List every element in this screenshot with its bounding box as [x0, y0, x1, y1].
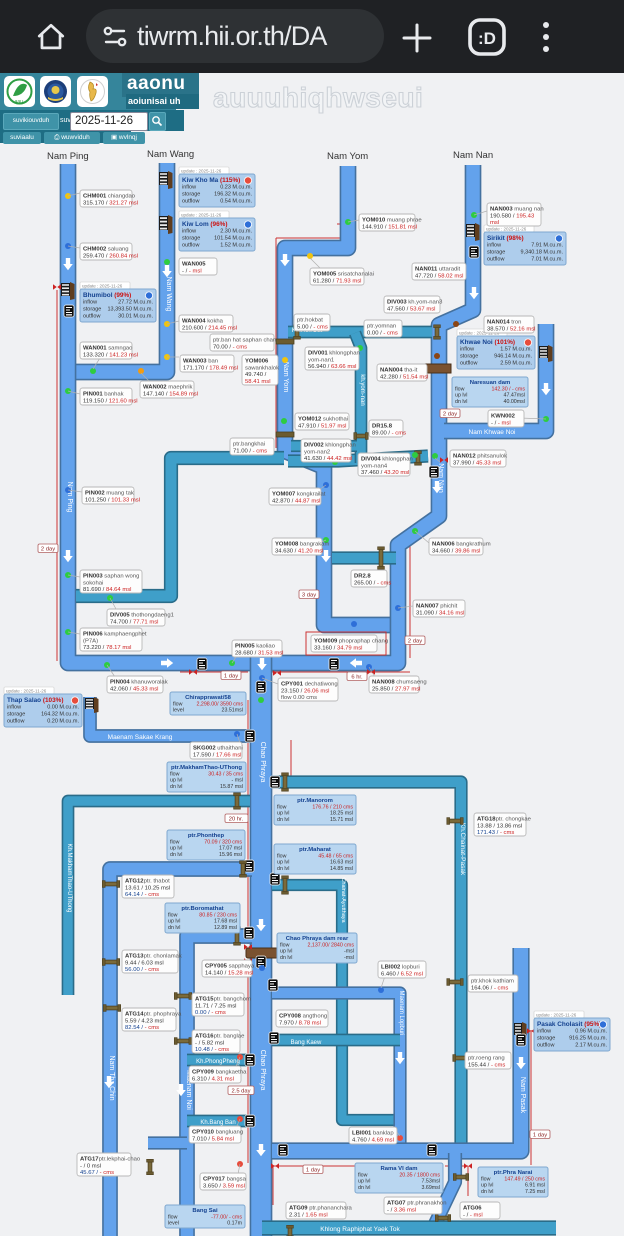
svg-text:ATG15ptr. bangchom: ATG15ptr. bangchom	[195, 997, 251, 1003]
svg-text:Naresuan dam: Naresuan dam	[470, 380, 511, 386]
svg-text:56.00 / - cms: 56.00 / - cms	[125, 967, 159, 973]
svg-text:70.09 / 320 cms: 70.09 / 320 cms	[204, 840, 242, 846]
svg-text:WAN005: WAN005	[182, 262, 206, 268]
svg-text:Kh.Chainat-Pasak: Kh.Chainat-Pasak	[459, 823, 466, 876]
svg-text:17.68 msl: 17.68 msl	[214, 919, 237, 925]
svg-text:13.88 / 13.86 msl: 13.88 / 13.86 msl	[477, 823, 522, 829]
svg-text:0.00 / - cms: 0.00 / - cms	[367, 330, 398, 336]
svg-text:47.910 / 51.97 msl: 47.910 / 51.97 msl	[298, 423, 346, 429]
svg-text:update : 2025-11-26: update : 2025-11-26	[181, 169, 222, 174]
svg-text:SKG002 uthaithani: SKG002 uthaithani	[193, 746, 243, 752]
svg-text:ATG07 ptr.phranakhon: ATG07 ptr.phranakhon	[387, 1201, 447, 1207]
svg-text:265.00 / - cms: 265.00 / - cms	[354, 580, 391, 586]
svg-text:42.060 / 45.33 msl: 42.060 / 45.33 msl	[110, 686, 158, 692]
svg-text:2 day: 2 day	[408, 638, 422, 644]
svg-text:71.00 / - cms: 71.00 / - cms	[233, 448, 267, 454]
svg-text:Chainat-Ayutthaya: Chainat-Ayutthaya	[340, 877, 346, 923]
svg-text:58.41 msl: 58.41 msl	[245, 379, 271, 385]
svg-text:17.07 msl: 17.07 msl	[219, 846, 242, 852]
svg-text:inflow: inflow	[7, 705, 21, 711]
svg-text:45.48 / 65 cms: 45.48 / 65 cms	[318, 854, 353, 860]
svg-text:kh.yom-nan: kh.yom-nan	[359, 374, 365, 405]
svg-text:81.690 / 84.64 msl: 81.690 / 84.64 msl	[83, 587, 131, 593]
svg-text:30.43 / 35 cms: 30.43 / 35 cms	[208, 772, 243, 778]
svg-text:34.630 / 41.20 msl: 34.630 / 41.20 msl	[275, 548, 323, 554]
svg-text:up lvl: up lvl	[170, 846, 182, 852]
svg-text:NAN008 chumsaeng: NAN008 chumsaeng	[372, 680, 427, 686]
svg-text:storage: storage	[7, 712, 25, 718]
svg-text:6 hr.: 6 hr.	[351, 674, 363, 680]
svg-text:49.740 /: 49.740 /	[245, 372, 267, 378]
svg-text:Kh.MakhamThao-UThong: Kh.MakhamThao-UThong	[66, 843, 72, 912]
svg-text:up lvl: up lvl	[481, 1183, 493, 1189]
svg-text:ATG09 ptr.phananchara: ATG09 ptr.phananchara	[289, 1206, 352, 1212]
svg-text:outflow: outflow	[182, 199, 199, 205]
svg-text:2.31 / 1.65 msl: 2.31 / 1.65 msl	[289, 1212, 328, 1218]
svg-text:2.30 M.cu.m.: 2.30 M.cu.m.	[220, 229, 252, 235]
svg-text:YOM012 sukhothai: YOM012 sukhothai	[298, 417, 348, 423]
svg-text:9,340.18 M.cu.m.: 9,340.18 M.cu.m.	[521, 250, 564, 256]
svg-text:update : 2025-11-26: update : 2025-11-26	[486, 227, 527, 232]
svg-text:Pasak Cholasit (95%): Pasak Cholasit (95%)	[537, 1021, 601, 1028]
svg-text:dn lvl: dn lvl	[170, 852, 182, 858]
svg-text:flow 0.00 cms: flow 0.00 cms	[281, 695, 317, 701]
svg-text:YOM009 phopraphap chang: YOM009 phopraphap chang	[314, 639, 388, 645]
svg-text:ATG18ptr. chongkae: ATG18ptr. chongkae	[477, 817, 532, 823]
svg-text:inflow: inflow	[182, 185, 196, 191]
svg-text:6.310 / 4.31 msl: 6.310 / 4.31 msl	[192, 1076, 234, 1082]
svg-text:14.85 msl: 14.85 msl	[330, 866, 353, 872]
svg-text:33.160 / 34.79 msl: 33.160 / 34.79 msl	[314, 645, 362, 651]
svg-text:level: level	[168, 1221, 179, 1227]
svg-text:171.170 / 178.49 msl: 171.170 / 178.49 msl	[183, 365, 238, 371]
svg-text:up lvl: up lvl	[170, 778, 182, 784]
svg-text:up lvl: up lvl	[455, 393, 467, 399]
svg-text:142.30 / - cms: 142.30 / - cms	[491, 387, 525, 393]
svg-text:inflow: inflow	[537, 1029, 551, 1035]
svg-text:176.76 / 210 cms: 176.76 / 210 cms	[312, 805, 353, 811]
svg-text:NAN004 tha-it: NAN004 tha-it	[380, 368, 418, 374]
svg-text:15.96 msl: 15.96 msl	[219, 852, 242, 858]
svg-text:Bhumibol (99%): Bhumibol (99%)	[83, 292, 131, 299]
svg-text:ATG13ptr. chonlamak: ATG13ptr. chonlamak	[125, 954, 182, 960]
svg-text:flow: flow	[358, 1173, 368, 1179]
svg-text:NAN012 phitsanulok: NAN012 phitsanulok	[453, 454, 507, 460]
svg-text:16.63 msl: 16.63 msl	[330, 860, 353, 866]
svg-text:update : 2025-11-26: update : 2025-11-26	[82, 284, 123, 289]
svg-text:0.23 M.cu.m.: 0.23 M.cu.m.	[220, 185, 252, 191]
svg-text:ATG06: ATG06	[463, 1206, 482, 1212]
svg-text:flow: flow	[455, 387, 465, 393]
svg-text:80.85 / 230 cms: 80.85 / 230 cms	[199, 913, 237, 919]
svg-text:12.89 msl: 12.89 msl	[214, 925, 237, 931]
svg-text:7.91 M.cu.m.: 7.91 M.cu.m.	[531, 243, 563, 249]
svg-text:Chao Phraya: Chao Phraya	[259, 1050, 266, 1091]
svg-text:13.61 / 10.25 msl: 13.61 / 10.25 msl	[125, 885, 170, 891]
svg-text:PIN003 saphan wong: PIN003 saphan wong	[83, 574, 139, 580]
svg-text:164.06 / - cms: 164.06 / - cms	[471, 985, 508, 991]
svg-text:DIV004 khlongphan: DIV004 khlongphan	[361, 457, 413, 463]
svg-text:0.00 / - cms: 0.00 / - cms	[195, 1010, 226, 1016]
svg-text:CPY017 bangsa: CPY017 bangsa	[203, 1177, 247, 1183]
svg-text:PIN005 kaoliao: PIN005 kaoliao	[235, 644, 276, 650]
svg-text:946.14 M.cu.m.: 946.14 M.cu.m.	[494, 354, 532, 360]
svg-text:Kiw Kho Ma (115%): Kiw Kho Ma (115%)	[182, 177, 240, 184]
svg-text:89.00 / - cms: 89.00 / - cms	[372, 430, 406, 436]
svg-text:dn lvl: dn lvl	[277, 817, 289, 823]
svg-text:ptr.Phonthep: ptr.Phonthep	[188, 833, 225, 839]
svg-text:DIV003 kh.yom-nan3: DIV003 kh.yom-nan3	[387, 300, 443, 306]
svg-text:update : 2025-11-26: update : 2025-11-26	[536, 1013, 577, 1018]
svg-text:CHM001 chiangdao: CHM001 chiangdao	[83, 194, 136, 200]
svg-text:yom-nan4: yom-nan4	[361, 463, 388, 469]
svg-text:ATG14ptr. phophraya: ATG14ptr. phophraya	[125, 1012, 182, 1018]
svg-text:Kh.PhongPheng: Kh.PhongPheng	[196, 1059, 240, 1065]
svg-text:259.470 / 260.84 msl: 259.470 / 260.84 msl	[83, 253, 138, 259]
svg-text:flow: flow	[168, 1215, 178, 1221]
svg-text:3 day: 3 day	[302, 592, 316, 598]
svg-text:YOM010 muang phrae: YOM010 muang phrae	[362, 218, 422, 224]
svg-text:- / - msl: - / - msl	[491, 420, 511, 426]
svg-text:YOM006: YOM006	[245, 359, 269, 365]
svg-text:17.590 / 17.66 msl: 17.590 / 17.66 msl	[193, 752, 241, 758]
svg-text:DR15.8: DR15.8	[372, 424, 393, 430]
svg-text:dn lvl: dn lvl	[358, 1185, 370, 1191]
svg-text:-msl: -msl	[344, 955, 354, 961]
svg-text:Nam Yom: Nam Yom	[282, 362, 289, 393]
svg-text:update : 2025-11-26: update : 2025-11-26	[181, 213, 222, 218]
svg-text:storage: storage	[182, 192, 200, 198]
svg-text:YOM005 srisatchanalai: YOM005 srisatchanalai	[313, 272, 374, 278]
svg-text:flow: flow	[170, 772, 180, 778]
svg-text:inflow: inflow	[83, 300, 97, 306]
svg-text:Nam Ping: Nam Ping	[66, 482, 73, 513]
svg-text:42.870 / 44.87 msl: 42.870 / 44.87 msl	[272, 498, 320, 504]
svg-text:13,393.50 M.cu.m.: 13,393.50 M.cu.m.	[107, 307, 153, 313]
svg-text:YOM008 bangrakam: YOM008 bangrakam	[275, 542, 329, 548]
svg-text:dn lvl: dn lvl	[277, 866, 289, 872]
svg-text:(P7A): (P7A)	[83, 638, 98, 644]
svg-text:3.69msl: 3.69msl	[421, 1185, 440, 1191]
svg-text:DIV002 khlongphan: DIV002 khlongphan	[304, 443, 356, 449]
svg-text:2 day: 2 day	[41, 546, 55, 552]
svg-text:47.560 / 53.67 msl: 47.560 / 53.67 msl	[387, 306, 435, 312]
svg-text:yom-nan1: yom-nan1	[308, 357, 334, 363]
svg-text:storage: storage	[83, 307, 101, 313]
svg-text:up lvl: up lvl	[358, 1179, 370, 1185]
svg-text:0.00 M.cu.m.: 0.00 M.cu.m.	[47, 705, 79, 711]
svg-text:Kh.Bang Ban: Kh.Bang Ban	[200, 1120, 235, 1126]
svg-text:101.250 / 101.33 msl: 101.250 / 101.33 msl	[85, 497, 140, 503]
svg-text:155.44 / - cms: 155.44 / - cms	[468, 1062, 505, 1068]
svg-text:inflow: inflow	[182, 229, 196, 235]
svg-text:ptr.Maharat: ptr.Maharat	[299, 847, 331, 853]
svg-text:196.32 M.cu.m.: 196.32 M.cu.m.	[214, 192, 252, 198]
svg-text:- msl: - msl	[232, 778, 243, 784]
svg-text:1 day: 1 day	[306, 1167, 320, 1173]
svg-text:flow: flow	[481, 1177, 491, 1183]
svg-text:KWN002: KWN002	[491, 414, 516, 420]
svg-text:25.850 / 27.97 msl: 25.850 / 27.97 msl	[372, 686, 420, 692]
svg-text:flow: flow	[277, 805, 287, 811]
svg-text:- / - msl: - / - msl	[182, 268, 202, 274]
svg-text:ptr.khok kathiam: ptr.khok kathiam	[471, 979, 514, 985]
svg-text:up lvl: up lvl	[280, 949, 292, 955]
svg-text:2 day: 2 day	[443, 411, 457, 417]
svg-text:47.47msl: 47.47msl	[504, 393, 526, 399]
svg-text:56.940 / 63.66 msl: 56.940 / 63.66 msl	[308, 364, 356, 370]
svg-text:ptr.yomnan: ptr.yomnan	[367, 324, 396, 330]
svg-text:Bang Sai: Bang Sai	[192, 1208, 218, 1214]
svg-text:164.32 M.cu.m.: 164.32 M.cu.m.	[41, 712, 79, 718]
svg-text:34.660 / 39.86 msl: 34.660 / 39.86 msl	[432, 548, 480, 554]
svg-text:Maenam Sakae Krang: Maenam Sakae Krang	[108, 734, 173, 741]
svg-text:CPY010 bangluang: CPY010 bangluang	[192, 1130, 243, 1136]
svg-text:0.96 M.cu.m.: 0.96 M.cu.m.	[575, 1029, 607, 1035]
svg-text:1 day: 1 day	[224, 673, 238, 679]
svg-text:NAN011 uttaradit: NAN011 uttaradit	[415, 267, 461, 273]
svg-text:64.14 / - cms: 64.14 / - cms	[125, 892, 159, 898]
svg-text:sokohai: sokohai	[83, 580, 103, 586]
svg-text:119.150 / 121.60 msl: 119.150 / 121.60 msl	[83, 398, 138, 404]
svg-text:outflow: outflow	[460, 361, 477, 367]
svg-text:CPY009 bangkaetha: CPY009 bangkaetha	[192, 1070, 247, 1076]
svg-text:up lvl: up lvl	[277, 860, 289, 866]
svg-text:ATG12ptr. thabot: ATG12ptr. thabot	[125, 879, 170, 885]
svg-text:190.580 / 195.43: 190.580 / 195.43	[490, 213, 535, 219]
svg-text:14.140 / 15.28 msl: 14.140 / 15.28 msl	[205, 970, 253, 976]
svg-text:Nam Wang: Nam Wang	[165, 277, 172, 312]
svg-text:-msl: -msl	[344, 949, 354, 955]
svg-text:PIN006 kamphaengphet: PIN006 kamphaengphet	[83, 632, 147, 638]
svg-text:PIN004 khanuworalak: PIN004 khanuworalak	[110, 680, 168, 686]
svg-text:10.48 / - cms: 10.48 / - cms	[195, 1047, 229, 1053]
svg-text:41.630 / 44.42 msl: 41.630 / 44.42 msl	[304, 456, 352, 462]
svg-text:CPY005 sapphaya: CPY005 sapphaya	[205, 964, 255, 970]
svg-text:ptr.Boromathat: ptr.Boromathat	[181, 906, 223, 912]
svg-text:37.990 / 45.33 msl: 37.990 / 45.33 msl	[453, 460, 501, 466]
svg-text:ptr.bangkhai: ptr.bangkhai	[233, 442, 265, 448]
svg-text:315.170 / 321.27 msl: 315.170 / 321.27 msl	[83, 200, 138, 206]
svg-text:storage: storage	[182, 236, 200, 242]
svg-text:7.01 M.cu.m.: 7.01 M.cu.m.	[531, 257, 563, 263]
svg-text:5.00 / - cms: 5.00 / - cms	[297, 324, 328, 330]
svg-text:- / 3.36 msl: - / 3.36 msl	[387, 1207, 416, 1213]
svg-text:3.650 / 3.59 msl: 3.650 / 3.59 msl	[203, 1183, 245, 1189]
svg-text:outflow: outflow	[182, 243, 199, 249]
svg-text:0.20 M.cu.m.: 0.20 M.cu.m.	[47, 719, 79, 725]
svg-text:45.67 / - cms: 45.67 / - cms	[80, 1170, 114, 1176]
svg-text:flow: flow	[168, 913, 178, 919]
svg-text:6.460 / 6.52 msl: 6.460 / 6.52 msl	[381, 971, 423, 977]
svg-text:inflow: inflow	[460, 347, 474, 353]
svg-text:flow: flow	[170, 840, 180, 846]
svg-text:2,137.00/ 2840 cms: 2,137.00/ 2840 cms	[307, 943, 354, 949]
svg-text:NAN007 phichit: NAN007 phichit	[416, 604, 458, 610]
svg-text:916.25 M.cu.m.: 916.25 M.cu.m.	[569, 1036, 607, 1042]
svg-text:2,298.00/ 3590 cms: 2,298.00/ 3590 cms	[196, 702, 243, 708]
svg-text:flow: flow	[277, 854, 287, 860]
svg-text:ptr.ban hat saphan chan: ptr.ban hat saphan chan	[213, 338, 276, 344]
svg-text:outflow: outflow	[487, 257, 504, 263]
svg-text:38.570 / 52.16 msl: 38.570 / 52.16 msl	[487, 326, 535, 332]
svg-text:82.54 / - cms: 82.54 / - cms	[125, 1025, 159, 1031]
svg-text:ATG16ptr. banglae: ATG16ptr. banglae	[195, 1034, 245, 1040]
svg-text:WAN003 ban: WAN003 ban	[183, 359, 218, 365]
svg-text:9.44 / 6.03 msl: 9.44 / 6.03 msl	[125, 960, 164, 966]
svg-text:dn lvl: dn lvl	[481, 1189, 493, 1195]
svg-text:outflow: outflow	[537, 1043, 554, 1049]
svg-text:1 day: 1 day	[533, 1132, 547, 1138]
svg-text:ptr.Manorom: ptr.Manorom	[297, 798, 333, 804]
svg-text:DIV001 khlongphan: DIV001 khlongphan	[308, 351, 360, 357]
svg-text:18.25 msl: 18.25 msl	[330, 811, 353, 817]
svg-text:2.59 M.cu.m.: 2.59 M.cu.m.	[500, 361, 532, 367]
svg-text:Chao Phraya: Chao Phraya	[259, 742, 266, 783]
svg-text:Khwae Noi (101%): Khwae Noi (101%)	[460, 339, 515, 346]
svg-text:WAN002 maephrik: WAN002 maephrik	[143, 385, 193, 391]
svg-text:171.43 / - cms: 171.43 / - cms	[477, 830, 514, 836]
svg-text:0.54 M.cu.m.: 0.54 M.cu.m.	[220, 199, 252, 205]
svg-text:210.600 / 214.45 msl: 210.600 / 214.45 msl	[182, 325, 237, 331]
svg-text:23.150 / 26.06 msl: 23.150 / 26.06 msl	[281, 688, 329, 694]
svg-text:WAN004 kokha: WAN004 kokha	[182, 319, 224, 325]
svg-text:47.720 / 58.02 msl: 47.720 / 58.02 msl	[415, 273, 463, 279]
svg-text:101.54 M.cu.m.: 101.54 M.cu.m.	[214, 236, 252, 242]
svg-text:update : 2025-11-26: update : 2025-11-26	[6, 689, 47, 694]
svg-text:dn lvl: dn lvl	[168, 925, 180, 931]
svg-text:Kiw Lom (96%): Kiw Lom (96%)	[182, 221, 227, 228]
svg-text:Khlong Raphiphat Yaek Tok: Khlong Raphiphat Yaek Tok	[320, 1226, 400, 1233]
svg-text:- / 5.82 msl: - / 5.82 msl	[195, 1040, 224, 1046]
svg-text:2.17 M.cu.m.: 2.17 M.cu.m.	[575, 1043, 607, 1049]
svg-text:7.010 / 5.84 msl: 7.010 / 5.84 msl	[192, 1136, 234, 1142]
svg-text:Nam Khwae Noi: Nam Khwae Noi	[469, 429, 516, 436]
svg-text:Rama VI dam: Rama VI dam	[381, 1166, 418, 1172]
svg-text:73.220 / 78.17 msl: 73.220 / 78.17 msl	[83, 645, 131, 651]
svg-text:DIV005 thothongdaeng1: DIV005 thothongdaeng1	[110, 613, 174, 619]
svg-text:Chao Phraya dam rear: Chao Phraya dam rear	[286, 936, 349, 942]
svg-text:level: level	[173, 708, 184, 714]
svg-text:storage: storage	[460, 354, 478, 360]
svg-text:NAN006 bangkrathum: NAN006 bangkrathum	[432, 542, 491, 548]
svg-text:30.01 M.cu.m.: 30.01 M.cu.m.	[118, 314, 153, 320]
svg-text:20 hr.: 20 hr.	[229, 816, 244, 822]
svg-text:Chirapprawat/58: Chirapprawat/58	[185, 695, 232, 701]
svg-text:4.760 / 4.69 msl: 4.760 / 4.69 msl	[352, 1137, 394, 1143]
svg-text:WAN001 samngao: WAN001 samngao	[83, 346, 133, 352]
svg-text:7.53msl: 7.53msl	[421, 1179, 440, 1185]
svg-text:15.87 msl: 15.87 msl	[220, 784, 243, 790]
svg-text:23.51msl: 23.51msl	[222, 708, 244, 714]
svg-text:dn lvl: dn lvl	[170, 784, 182, 790]
svg-text:outflow: outflow	[83, 314, 100, 320]
svg-text:YOM007 kongkrailat: YOM007 kongkrailat	[272, 492, 326, 498]
svg-text:ptr.roeng rang: ptr.roeng rang	[468, 1056, 505, 1062]
svg-text:74.700 / 77.71 msl: 74.700 / 77.71 msl	[110, 619, 158, 625]
svg-text:storage: storage	[537, 1036, 555, 1042]
svg-text:sawankhalok: sawankhalok	[245, 365, 279, 371]
svg-text:70.00 / - cms: 70.00 / - cms	[213, 344, 247, 350]
svg-text:0.17m: 0.17m	[227, 1221, 242, 1227]
svg-text:NAN014 tron: NAN014 tron	[487, 320, 521, 326]
svg-text:PIN002 muang tak: PIN002 muang tak	[85, 491, 134, 497]
svg-text:31.090 / 34.16 msl: 31.090 / 34.16 msl	[416, 610, 464, 616]
svg-text:PIN001 banhak: PIN001 banhak	[83, 392, 124, 398]
svg-text:7.970 / 8.78 msl: 7.970 / 8.78 msl	[279, 1020, 321, 1026]
svg-text:6.91 msl: 6.91 msl	[525, 1183, 545, 1189]
svg-text:ptr.hokbat: ptr.hokbat	[297, 318, 323, 324]
svg-text:Bang Kaew: Bang Kaew	[291, 1040, 322, 1046]
svg-text:up lvl: up lvl	[168, 919, 180, 925]
svg-text:up lvl: up lvl	[277, 811, 289, 817]
svg-text:CPY001 dechatiwong: CPY001 dechatiwong	[281, 682, 338, 688]
svg-text:CHM002 saluang: CHM002 saluang	[83, 247, 129, 253]
svg-text:15.71 msl: 15.71 msl	[330, 817, 353, 823]
svg-text:2.5 day: 2.5 day	[231, 1088, 250, 1094]
svg-text:61.280 / 71.93 msl: 61.280 / 71.93 msl	[313, 278, 361, 284]
svg-text:LBI002 lopburi: LBI002 lopburi	[381, 965, 420, 971]
svg-text:yom-nan2: yom-nan2	[304, 449, 330, 455]
svg-text:ATG17ptr.lekphai-chao: ATG17ptr.lekphai-chao	[80, 1157, 141, 1163]
svg-text:Sirikit (98%): Sirikit (98%)	[487, 235, 524, 242]
svg-text:msl: msl	[490, 220, 499, 226]
svg-text:144.910 / 151.81 msl: 144.910 / 151.81 msl	[362, 224, 417, 230]
svg-text:27.72 M.cu.m.: 27.72 M.cu.m.	[118, 300, 153, 306]
svg-text:5.59 / 4.23 msl: 5.59 / 4.23 msl	[125, 1018, 164, 1024]
svg-text:40.00msl: 40.00msl	[504, 399, 526, 405]
svg-text:flow: flow	[280, 943, 290, 949]
svg-text:-77.00/ - cms: -77.00/ - cms	[211, 1215, 242, 1221]
svg-text:42.280 / 51.54 msl: 42.280 / 51.54 msl	[380, 374, 428, 380]
svg-text:7.25 msl: 7.25 msl	[525, 1189, 545, 1195]
svg-text:CPY008 angthong: CPY008 angthong	[279, 1014, 327, 1020]
svg-text:flow: flow	[173, 702, 183, 708]
svg-text:outflow: outflow	[7, 719, 24, 725]
svg-text:NAN003 muang nan: NAN003 muang nan	[490, 207, 544, 213]
svg-text:1.57 M.cu.m.: 1.57 M.cu.m.	[500, 347, 532, 353]
svg-text:ptr.MakhamThao-UThong: ptr.MakhamThao-UThong	[171, 765, 242, 771]
svg-text:LBI001 banklap: LBI001 banklap	[352, 1131, 394, 1137]
svg-text:37.460 / 43.20 msl: 37.460 / 43.20 msl	[361, 470, 409, 476]
svg-text:- / - msl: - / - msl	[463, 1212, 483, 1218]
svg-text:DR2.8: DR2.8	[354, 574, 371, 580]
svg-text:Nam Pasak: Nam Pasak	[519, 1077, 526, 1114]
svg-text:147.140 / 154.89 msl: 147.140 / 154.89 msl	[143, 391, 198, 397]
svg-text:dn lvl: dn lvl	[455, 399, 467, 405]
svg-text:147.49 / 250 cms: 147.49 / 250 cms	[504, 1177, 545, 1183]
svg-text:Maenam Lopburi: Maenam Lopburi	[398, 990, 404, 1035]
svg-text:133.320 / 141.23 msl: 133.320 / 141.23 msl	[83, 352, 138, 358]
svg-text:Thap Salao (103%): Thap Salao (103%)	[7, 697, 63, 704]
svg-text:20.35 / 1800 cms: 20.35 / 1800 cms	[399, 1173, 440, 1179]
svg-text:dn lvl: dn lvl	[280, 955, 292, 961]
svg-text:28.680 / 31.53 msl: 28.680 / 31.53 msl	[235, 650, 283, 656]
svg-text:ptr.Phra Narai: ptr.Phra Narai	[494, 1170, 533, 1176]
svg-text:1.52 M.cu.m.: 1.52 M.cu.m.	[220, 243, 252, 249]
svg-text:- / 0 msl: - / 0 msl	[80, 1163, 101, 1169]
svg-text:11.71 / 7.25 msl: 11.71 / 7.25 msl	[195, 1003, 236, 1009]
svg-text:inflow: inflow	[487, 243, 501, 249]
svg-text:storage: storage	[487, 250, 505, 256]
